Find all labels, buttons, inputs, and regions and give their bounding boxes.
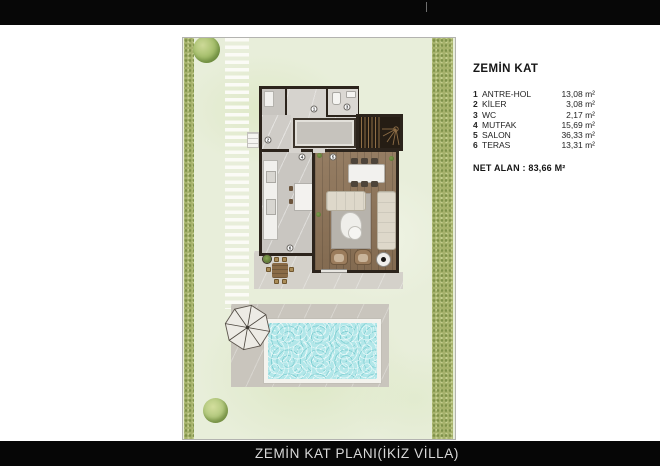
legend: ZEMİN KAT 1 ANTRE-HOL 13,08 m² 2 KİLER 3… (473, 63, 595, 173)
legend-row: 1 ANTRE-HOL 13,08 m² (473, 89, 595, 99)
plant (317, 153, 322, 158)
room-marker-4: 4 (299, 154, 306, 161)
room-number: 4 (473, 120, 482, 130)
door-opening (313, 149, 325, 153)
sofa-chaise (377, 191, 396, 250)
coffee-table-small (348, 226, 362, 240)
room-name: TERAS (482, 140, 510, 150)
outdoor-table (272, 263, 288, 278)
room-area: 36,33 m² (561, 130, 595, 140)
plan-title: ZEMİN KAT PLANI(İKİZ VİLLA) (255, 446, 459, 461)
plant (316, 212, 321, 217)
room-marker-1: 1 (311, 106, 318, 113)
room-marker-2: 2 (265, 137, 272, 144)
armchair (354, 249, 372, 265)
room-area: 3,08 m² (566, 99, 595, 109)
room-number: 3 (473, 110, 482, 120)
room-name: ANTRE-HOL (482, 89, 531, 99)
legend-title: ZEMİN KAT (473, 63, 595, 75)
room-marker-5: 5 (330, 154, 337, 161)
room-name: SALON (482, 130, 511, 140)
door-opening (289, 149, 301, 153)
armchair (330, 249, 348, 265)
legend-row: 5 SALON 36,33 m² (473, 130, 595, 140)
legend-rows: 1 ANTRE-HOL 13,08 m² 2 KİLER 3,08 m² 3 W… (473, 89, 595, 151)
hedge-left (184, 38, 194, 439)
potted-plant (263, 255, 271, 263)
entry-steps (247, 132, 259, 148)
outdoor-chair (274, 257, 279, 262)
outdoor-chair (266, 267, 271, 272)
pool (264, 319, 381, 383)
toilet (332, 92, 341, 105)
legend-row: 2 KİLER 3,08 m² (473, 99, 595, 109)
kiler-room (262, 89, 287, 117)
dining-chair (371, 181, 378, 187)
bush (203, 398, 228, 423)
site-plan: 1 2 3 4 5 6 (182, 37, 456, 440)
net-area-total: NET ALAN : 83,66 M² (473, 163, 595, 173)
cooktop (266, 171, 276, 183)
top-bar-tick-artifact (426, 2, 427, 12)
legend-row: 3 WC 2,17 m² (473, 110, 595, 120)
plant (389, 156, 394, 161)
dining-chair (361, 181, 368, 187)
room-area: 13,31 m² (561, 140, 595, 150)
sliding-door (321, 269, 347, 273)
side-table (376, 252, 391, 267)
kitchen-block (259, 149, 315, 256)
room-name: KİLER (482, 99, 507, 109)
room-name: WC (482, 110, 496, 120)
room-number: 5 (473, 130, 482, 140)
kitchen-counter (263, 160, 278, 240)
hedge-right (432, 38, 453, 439)
room-name: MUTFAK (482, 120, 516, 130)
top-black-bar (0, 0, 660, 25)
outdoor-chair (289, 267, 294, 272)
room-area: 2,17 m² (566, 110, 595, 120)
room-area: 15,69 m² (561, 120, 595, 130)
pool-water (268, 323, 377, 379)
sofa (326, 191, 366, 211)
entry-rug-center (297, 122, 352, 144)
room-area: 13,08 m² (561, 89, 595, 99)
stool (289, 199, 293, 204)
dining-chair (371, 158, 378, 164)
stool (289, 186, 293, 191)
umbrella (223, 303, 272, 352)
legend-row: 4 MUTFAK 15,69 m² (473, 120, 595, 130)
footer-bar: ZEMİN KAT PLANI(İKİZ VİLLA) (0, 441, 660, 466)
outdoor-chair (282, 257, 287, 262)
tree (193, 37, 220, 63)
path-floor (319, 272, 403, 289)
kiler-shelf (264, 91, 274, 107)
salon-block (312, 149, 399, 273)
room-number: 2 (473, 99, 482, 109)
entry-rug (293, 118, 356, 148)
kitchen-island (294, 183, 314, 211)
room-number: 1 (473, 89, 482, 99)
room-number: 6 (473, 140, 482, 150)
kitchen-sink (266, 199, 276, 215)
dining-chair (351, 181, 358, 187)
room-marker-3: 3 (344, 104, 351, 111)
outdoor-chair (282, 279, 287, 284)
outdoor-chair (274, 279, 279, 284)
corridor-floor (262, 115, 291, 149)
legend-row: 6 TERAS 13,31 m² (473, 140, 595, 150)
striped-driveway (225, 38, 249, 309)
sink (346, 91, 356, 98)
dining-chair (361, 158, 368, 164)
entry-hall-block (259, 86, 359, 152)
room-marker-6: 6 (287, 245, 294, 252)
staircase (356, 114, 403, 151)
wc-room (326, 89, 358, 117)
dining-chair (351, 158, 358, 164)
